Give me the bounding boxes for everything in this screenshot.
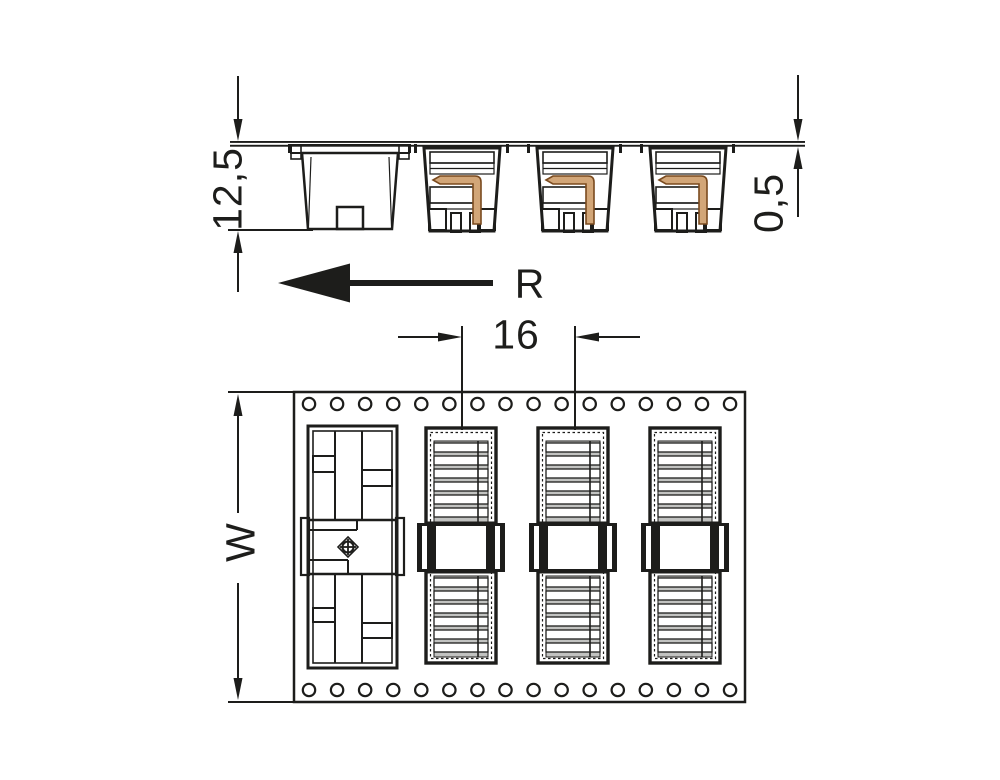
sprocket-hole (584, 398, 596, 410)
sprocket-hole (555, 684, 567, 696)
sprocket-hole (331, 684, 343, 696)
canvas-background (0, 0, 1000, 780)
sprocket-hole (415, 398, 427, 410)
direction-label-R: R (515, 260, 546, 306)
sprocket-hole (471, 684, 483, 696)
sprocket-hole (387, 398, 399, 410)
sprocket-hole (696, 398, 708, 410)
sprocket-hole (415, 684, 427, 696)
sprocket-hole (640, 398, 652, 410)
sprocket-hole (527, 684, 539, 696)
sprocket-hole (612, 398, 624, 410)
sprocket-hole (303, 684, 315, 696)
sprocket-hole (668, 398, 680, 410)
carrier-tape-top-line (230, 141, 805, 143)
sprocket-hole (724, 398, 736, 410)
sprocket-hole (499, 684, 511, 696)
sprocket-hole (443, 398, 455, 410)
sprocket-hole (471, 398, 483, 410)
sprocket-hole (612, 684, 624, 696)
sprocket-hole (668, 684, 680, 696)
sprocket-hole (527, 398, 539, 410)
sprocket-hole (387, 684, 399, 696)
technical-drawing: 12,5 0,5 R 16 (0, 0, 1000, 780)
dimension-label-0-5: 0,5 (745, 173, 791, 233)
sprocket-hole (303, 398, 315, 410)
sprocket-hole (499, 398, 511, 410)
dimension-label-W: W (217, 522, 263, 562)
sprocket-hole (443, 684, 455, 696)
sprocket-hole (724, 684, 736, 696)
sprocket-hole (331, 398, 343, 410)
sprocket-hole (555, 398, 567, 410)
dimension-label-16: 16 (492, 311, 540, 357)
drawing-canvas: 12,5 0,5 R 16 (0, 0, 1000, 780)
sprocket-hole (584, 684, 596, 696)
sprocket-hole (640, 684, 652, 696)
dimension-label-12-5: 12,5 (204, 147, 250, 231)
sprocket-hole (696, 684, 708, 696)
sprocket-hole (359, 398, 371, 410)
sprocket-hole (359, 684, 371, 696)
